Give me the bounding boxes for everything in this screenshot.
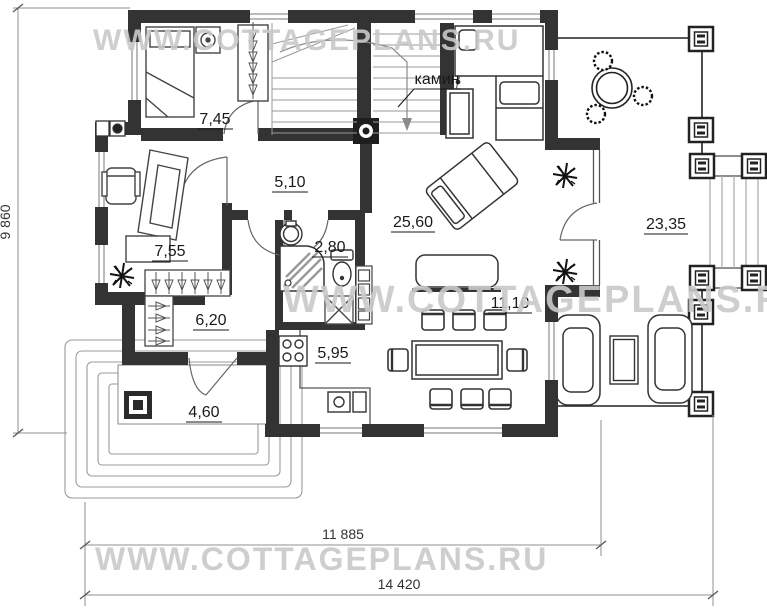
bathroom-sink [280, 221, 302, 245]
terrace-column [689, 118, 713, 142]
desk [138, 150, 188, 240]
bay-window [594, 150, 600, 285]
lounge-chair [424, 141, 519, 231]
dining-table [412, 341, 502, 379]
room-area-bathroom: 2,80 [314, 239, 345, 256]
room-area-corridor: 6,20 [195, 312, 226, 329]
wardrobe-corridor [145, 270, 230, 346]
fireplace-label: камин [414, 71, 459, 88]
plant [553, 163, 577, 188]
terrace-column [689, 27, 713, 51]
watermark-bottom: WWW.COTTAGEPLANS.RU [95, 541, 548, 577]
dining-chair [461, 389, 483, 409]
terrace-table [592, 68, 632, 108]
dining-chair [388, 349, 408, 371]
floor-plan-page: 9 860 11 885 14 420 7,45 5,10 7,55 2,80 … [0, 0, 767, 612]
room-area-hall: 5,10 [274, 174, 305, 191]
terrace-coffee-table [610, 336, 638, 384]
dining-chair [430, 389, 452, 409]
terrace-sofa [556, 315, 600, 405]
floor-plan-drawing: 9 860 11 885 14 420 7,45 5,10 7,55 2,80 … [0, 0, 767, 612]
room-area-study: 7,55 [154, 243, 185, 260]
room-area-terrace: 23,35 [646, 216, 686, 233]
room-area-porch: 4,60 [188, 404, 219, 421]
terrace-column [690, 154, 714, 178]
watermark-middle: WWW.COTTAGEPLANS.RU [283, 279, 767, 321]
terrace-column [742, 154, 766, 178]
dimension-left: 9 860 [0, 204, 13, 239]
kitchen-sink [328, 392, 366, 412]
terrace-column [689, 392, 713, 416]
room-area-living: 25,60 [393, 214, 433, 231]
dimension-bottom-total: 14 420 [378, 576, 421, 592]
dimension-bottom-inner: 11 885 [322, 526, 364, 542]
stove [279, 336, 307, 366]
terrace-sofa [648, 315, 692, 403]
dining-chair [489, 389, 511, 409]
porch-column [124, 391, 152, 419]
washing-machines [96, 121, 125, 136]
office-chair [102, 168, 140, 204]
room-area-kitchen: 5,95 [317, 345, 348, 362]
fireplace [446, 89, 473, 138]
room-area-bedroom: 7,45 [199, 111, 230, 128]
dining-chair [507, 349, 527, 371]
watermark-top: WWW.COTTAGEPLANS.RU [93, 24, 520, 57]
plant [110, 263, 134, 288]
